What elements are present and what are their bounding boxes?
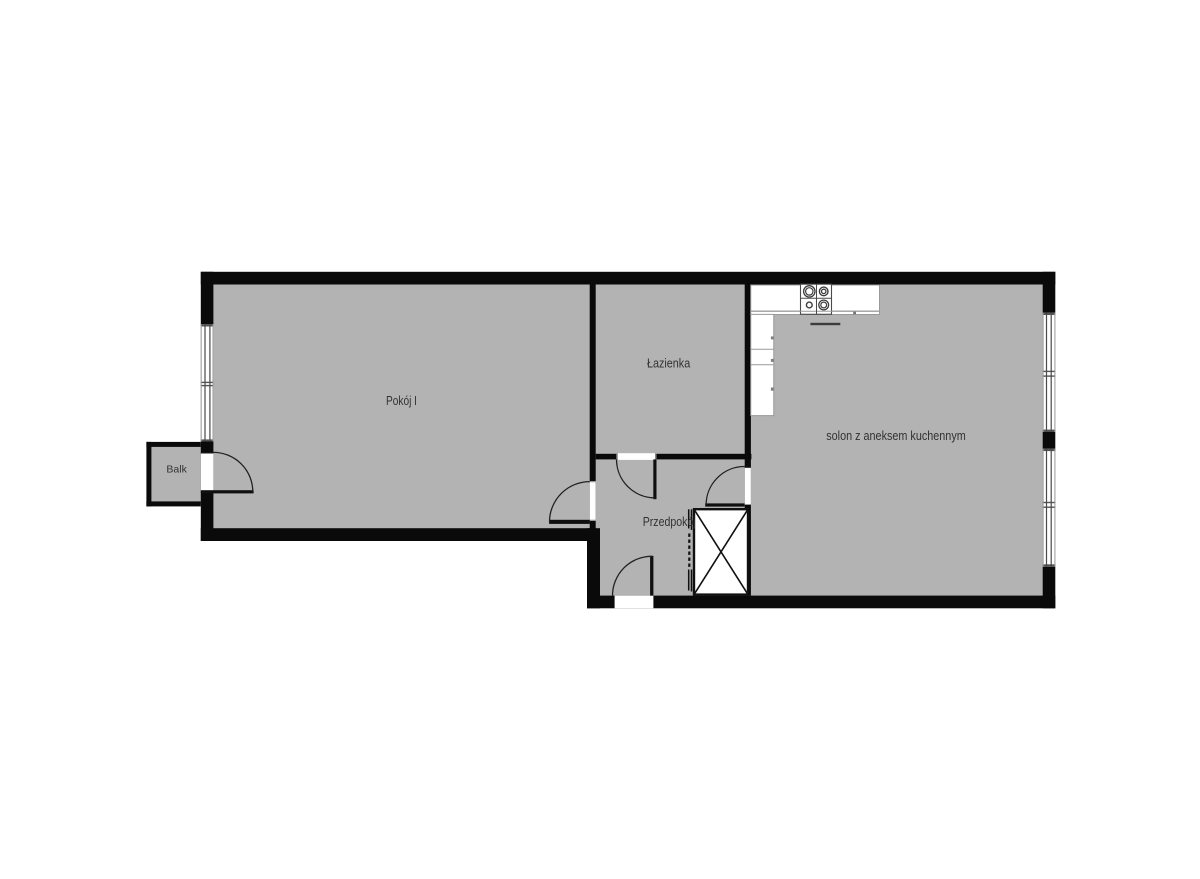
svg-text:solon z aneksem kuchennym: solon z aneksem kuchennym: [826, 428, 966, 443]
svg-text:Pokój I: Pokój I: [386, 393, 417, 408]
svg-text:Łazienka: Łazienka: [647, 356, 691, 371]
svg-text:Przedpokój: Przedpokój: [643, 514, 696, 529]
svg-text:Balk: Balk: [166, 465, 187, 476]
